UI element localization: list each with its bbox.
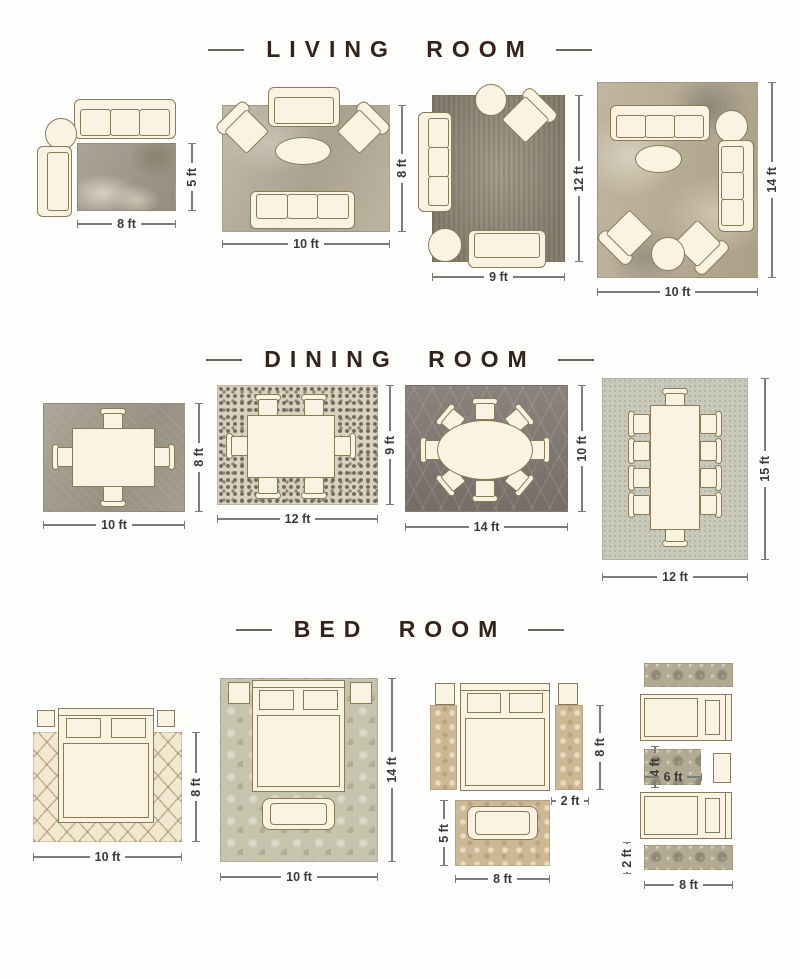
dining-chair xyxy=(472,400,498,420)
bed-room-layout-runners: 8 ft 2 ft 5 ft 8 ft xyxy=(425,672,620,890)
pillow xyxy=(509,693,542,713)
nightstand xyxy=(558,683,578,705)
loveseat xyxy=(268,87,340,127)
living-room-layout-8x5: 8 ft 5 ft xyxy=(30,95,210,235)
dim-width-label: 10 ft xyxy=(597,285,758,299)
dim-line xyxy=(132,524,184,525)
dim-text: 8 ft xyxy=(192,448,206,467)
dim-line xyxy=(645,776,658,777)
dim-width-label: 12 ft xyxy=(602,570,748,584)
title-dash xyxy=(236,629,272,631)
dim-width-label: 14 ft xyxy=(405,520,568,534)
bed-room-layout-10x8: 10 ft 8 ft xyxy=(25,690,215,875)
dim-line xyxy=(456,878,488,879)
dim-tick xyxy=(398,231,406,232)
dining-chair xyxy=(54,444,74,470)
dim-height-label: 5 ft xyxy=(185,143,199,211)
sofa-cushion xyxy=(428,118,449,148)
nightstand xyxy=(435,683,455,705)
loveseat xyxy=(468,230,546,268)
dining-room-layout-12x15: 12 ft 15 ft xyxy=(600,372,790,597)
dim-runner-height-label: 2 ft xyxy=(620,842,634,874)
dim-width-label: 10 ft xyxy=(43,518,185,532)
nightstand xyxy=(713,753,731,783)
headboard xyxy=(253,681,344,688)
section-title-living-room: LIVING ROOM xyxy=(0,36,800,63)
dim-height-label: 12 ft xyxy=(572,95,586,262)
dim-line xyxy=(195,801,196,840)
side-table xyxy=(715,110,748,143)
dim-line xyxy=(391,679,392,752)
dim-tick xyxy=(184,521,185,529)
dim-height-label: 8 ft xyxy=(192,403,206,512)
sofa-cushion xyxy=(645,115,675,138)
dim-text: 10 ft xyxy=(293,237,319,251)
ottoman xyxy=(651,237,685,271)
dim-line xyxy=(324,243,389,244)
dim-text: 14 ft xyxy=(385,757,399,783)
dim-height-label: 10 ft xyxy=(575,385,589,512)
dim-width-label: 10 ft xyxy=(222,237,390,251)
dim-height-label: 14 ft xyxy=(765,82,779,278)
rug xyxy=(77,143,176,211)
sofa xyxy=(610,105,710,141)
dim-width-label: 8 ft xyxy=(644,878,733,892)
dim-width-label: 12 ft xyxy=(217,512,378,526)
bench xyxy=(467,806,538,840)
dim-line xyxy=(443,801,444,818)
bench xyxy=(262,798,335,830)
dim-text: 10 ft xyxy=(665,285,691,299)
dining-table xyxy=(650,405,700,530)
sofa-cushion xyxy=(721,172,744,199)
living-room-layout-9x12: 9 ft 12 ft xyxy=(415,82,590,287)
mattress xyxy=(465,718,545,786)
dim-line xyxy=(771,83,772,162)
dim-runner-height-label: 8 ft xyxy=(593,705,607,790)
dim-tick xyxy=(596,789,604,790)
dim-tick xyxy=(175,220,176,228)
coffee-table xyxy=(635,145,682,173)
dim-line xyxy=(78,223,112,224)
dim-tick xyxy=(181,853,182,861)
title-dash xyxy=(556,49,592,51)
title-dash xyxy=(208,49,244,51)
sofa xyxy=(718,140,754,232)
dim-line xyxy=(443,847,444,864)
dining-chair xyxy=(472,480,498,500)
dining-chair xyxy=(700,411,720,437)
dining-table xyxy=(437,420,533,480)
coffee-table xyxy=(275,137,331,165)
sofa-cushion xyxy=(674,115,704,138)
dim-line xyxy=(198,472,199,511)
dining-chair xyxy=(700,492,720,518)
runner-rug xyxy=(644,663,733,687)
pillow xyxy=(303,690,338,710)
dining-chair xyxy=(255,396,281,416)
dining-chair xyxy=(255,477,281,497)
dim-tick xyxy=(440,865,448,866)
dim-tick xyxy=(386,504,394,505)
sofa-cushion xyxy=(110,109,141,136)
dim-text: 15 ft xyxy=(758,456,772,482)
section-title-dining-room: DINING ROOM xyxy=(0,346,800,373)
dining-room-layout-14x10: 14 ft 10 ft xyxy=(400,380,598,535)
dim-line xyxy=(513,276,564,277)
sofa-cushion xyxy=(256,194,288,219)
dim-tick xyxy=(377,873,378,881)
dim-line xyxy=(433,276,484,277)
dining-room-layout-12x9: 12 ft 9 ft xyxy=(210,378,400,528)
dim-line xyxy=(598,291,659,292)
dim-tick xyxy=(761,559,769,560)
bench-seat xyxy=(475,811,530,835)
dining-chair xyxy=(630,411,650,437)
dim-text: 8 ft xyxy=(493,872,512,886)
dim-text: 14 ft xyxy=(765,167,779,193)
sofa-cushion xyxy=(317,194,349,219)
dim-line xyxy=(771,198,772,277)
dim-tick xyxy=(564,273,565,281)
dim-width-label: 10 ft xyxy=(220,870,378,884)
dim-line xyxy=(191,144,192,162)
dim-line xyxy=(764,379,765,451)
twin-bed xyxy=(640,792,732,839)
dim-line xyxy=(401,183,402,231)
nightstand xyxy=(228,682,250,704)
headboard xyxy=(725,793,726,838)
mattress xyxy=(63,743,149,818)
dim-text: 12 ft xyxy=(285,512,311,526)
dim-text: 6 ft xyxy=(664,770,683,784)
dining-table xyxy=(247,415,335,478)
dim-line xyxy=(141,223,175,224)
dim-tick xyxy=(192,841,200,842)
dim-line xyxy=(517,878,549,879)
dim-text: 12 ft xyxy=(662,570,688,584)
dim-line xyxy=(125,856,180,857)
sofa-cushion xyxy=(47,152,69,211)
dining-table xyxy=(72,428,155,487)
sofa-cushion xyxy=(474,233,540,258)
dim-line xyxy=(191,191,192,209)
nightstand xyxy=(157,710,175,727)
dim-text: 8 ft xyxy=(117,217,136,231)
dim-tick xyxy=(388,861,396,862)
dining-chair xyxy=(700,438,720,464)
living-room-layout-10x14: 10 ft 14 ft xyxy=(595,75,790,303)
dim-width-label: 9 ft xyxy=(432,270,565,284)
pillow xyxy=(467,693,500,713)
twin-bed xyxy=(640,694,732,741)
dining-chair xyxy=(630,465,650,491)
dim-text: 2 ft xyxy=(561,794,580,808)
dim-text: 12 ft xyxy=(572,166,586,192)
dim-tick xyxy=(567,523,568,531)
dim-line xyxy=(581,466,582,510)
dim-tick xyxy=(389,240,390,248)
dim-text: 5 ft xyxy=(185,168,199,187)
title-dash xyxy=(558,359,594,361)
living-room-layout-10x8: 10 ft 8 ft xyxy=(215,85,405,260)
dim-line xyxy=(221,876,281,877)
bed-room-layout-twin-beds: 4 ft 6 ft 2 ft 8 ft xyxy=(620,652,800,900)
bed xyxy=(460,683,550,791)
dim-line xyxy=(44,524,96,525)
dim-tick xyxy=(188,210,196,211)
dining-chair xyxy=(630,492,650,518)
nightstand xyxy=(350,682,372,704)
dim-text: 9 ft xyxy=(383,436,397,455)
runner-rug xyxy=(555,705,583,790)
runner-rug xyxy=(430,705,457,790)
nightstand xyxy=(37,710,55,727)
dim-line xyxy=(504,526,566,527)
sofa-cushion xyxy=(721,199,744,226)
dim-height-label: 9 ft xyxy=(383,385,397,505)
dim-tick xyxy=(549,875,550,883)
dim-line xyxy=(645,884,674,885)
dining-chair xyxy=(153,444,173,470)
ottoman xyxy=(428,228,462,262)
dim-width-label: 8 ft xyxy=(77,217,176,231)
dining-chair xyxy=(700,465,720,491)
bench-seat xyxy=(270,803,327,825)
headboard xyxy=(59,709,153,716)
sofa-cushion xyxy=(721,146,744,173)
headboard xyxy=(461,684,549,691)
runner-rug xyxy=(644,845,733,870)
section-title-text: BED ROOM xyxy=(294,616,507,643)
dim-line xyxy=(603,576,657,577)
dim-text: 10 ft xyxy=(101,518,127,532)
dim-line xyxy=(198,404,199,443)
dim-tick xyxy=(747,573,748,581)
pillow xyxy=(66,718,102,738)
dim-line xyxy=(315,518,376,519)
mattress xyxy=(644,698,698,737)
rug-size-guide: LIVING ROOM 8 ft 5 ft 10 ft 8 ft 9 ft 12… xyxy=(0,0,800,978)
dim-height-label: 14 ft xyxy=(385,678,399,862)
sofa-cushion xyxy=(428,176,449,206)
pillow xyxy=(259,690,294,710)
dim-text: 9 ft xyxy=(489,270,508,284)
dining-chair xyxy=(100,410,126,430)
sofa xyxy=(418,112,452,212)
sofa-cushion xyxy=(428,147,449,177)
dim-tick xyxy=(578,511,586,512)
dining-chair xyxy=(301,396,327,416)
dim-line xyxy=(223,243,288,244)
bed-room-layout-10x14: 10 ft 14 ft xyxy=(200,668,400,898)
pillow xyxy=(111,718,147,738)
dim-height-label: 15 ft xyxy=(758,378,772,560)
sofa xyxy=(250,191,355,229)
dim-line xyxy=(687,776,700,777)
dim-line xyxy=(389,386,390,430)
dim-line xyxy=(195,733,196,772)
dim-line xyxy=(389,459,390,503)
headboard xyxy=(725,695,726,740)
dim-line xyxy=(218,518,279,519)
dim-line xyxy=(34,856,89,857)
section-title-bed-room: BED ROOM xyxy=(0,616,800,643)
sofa-cushion xyxy=(616,115,646,138)
mattress xyxy=(644,796,698,835)
dining-chair xyxy=(630,438,650,464)
dim-line xyxy=(578,196,579,260)
sofa xyxy=(74,99,176,139)
sofa-cushion xyxy=(139,109,170,136)
dim-line xyxy=(317,876,377,877)
section-title-text: DINING ROOM xyxy=(264,346,535,373)
dining-chair xyxy=(100,485,126,505)
dim-tick xyxy=(575,261,583,262)
dim-tick xyxy=(757,288,758,296)
dim-line xyxy=(764,487,765,559)
sofa-cushion xyxy=(80,109,111,136)
dim-height-label: 8 ft xyxy=(395,105,409,232)
title-dash xyxy=(528,629,564,631)
dim-line xyxy=(581,386,582,430)
dim-tick xyxy=(623,873,631,874)
mattress xyxy=(257,715,340,787)
dining-chair xyxy=(301,477,327,497)
dining-chair xyxy=(228,433,248,459)
sofa-cushion xyxy=(274,97,334,124)
sofa-cushion xyxy=(287,194,319,219)
dim-line xyxy=(391,788,392,861)
section-title-text: LIVING ROOM xyxy=(266,36,534,63)
dim-line xyxy=(552,800,555,801)
dim-text: 8 ft xyxy=(395,159,409,178)
dim-tick xyxy=(701,773,702,781)
dim-line xyxy=(695,291,756,292)
pillow xyxy=(705,798,720,833)
dim-tick xyxy=(732,881,733,889)
dim-tick xyxy=(377,515,378,523)
title-dash xyxy=(206,359,242,361)
dim-width-label: 10 ft xyxy=(33,850,182,864)
dim-text: 2 ft xyxy=(620,849,634,868)
dim-text: 10 ft xyxy=(286,870,312,884)
dim-tick xyxy=(651,787,659,788)
dim-text: 5 ft xyxy=(437,824,451,843)
pillow xyxy=(705,700,720,735)
dim-runner-width-label: 2 ft xyxy=(551,794,589,808)
dim-text: 10 ft xyxy=(575,436,589,462)
dim-bench-rug-height-label: 5 ft xyxy=(437,800,451,866)
dining-chair xyxy=(334,433,354,459)
dim-line xyxy=(578,96,579,160)
dim-line xyxy=(599,762,600,789)
dim-line xyxy=(599,706,600,733)
chaise xyxy=(37,146,72,217)
dim-text: 8 ft xyxy=(679,878,698,892)
dim-text: 8 ft xyxy=(593,738,607,757)
dim-line xyxy=(703,884,732,885)
dining-room-layout-10x8: 10 ft 8 ft xyxy=(40,390,210,535)
dim-line xyxy=(654,747,655,752)
dim-width-label: 8 ft xyxy=(455,872,550,886)
dim-mid-rug-width-label: 6 ft xyxy=(644,770,702,784)
dim-text: 14 ft xyxy=(474,520,500,534)
dim-line xyxy=(406,526,468,527)
dim-text: 10 ft xyxy=(95,850,121,864)
dim-tick xyxy=(195,511,203,512)
bed xyxy=(58,708,154,823)
dim-tick xyxy=(768,277,776,278)
dim-line xyxy=(693,576,747,577)
dim-line xyxy=(401,106,402,154)
bed xyxy=(252,680,345,792)
dim-tick xyxy=(588,797,589,805)
